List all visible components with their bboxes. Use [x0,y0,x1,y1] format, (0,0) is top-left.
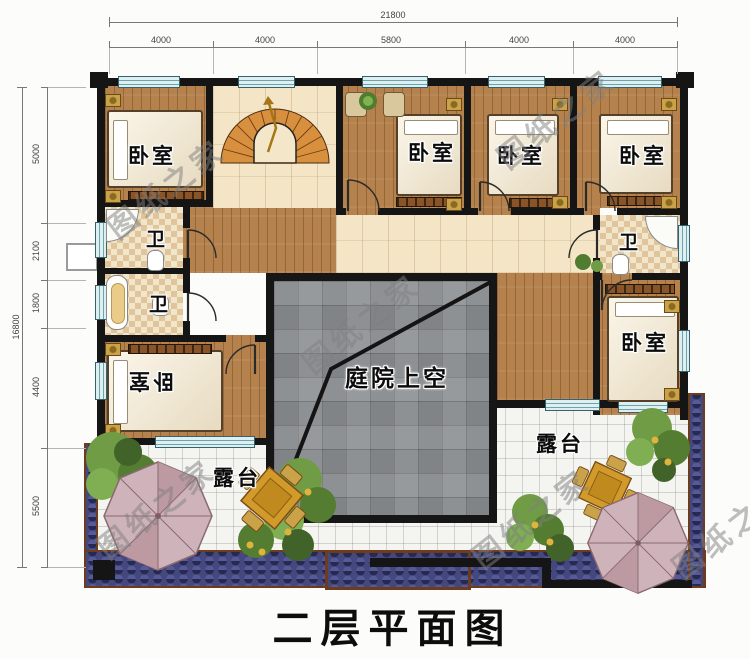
wall [183,321,190,342]
dim-total-top: 21800 [353,10,433,20]
dim-seg-top: 4000 [235,35,295,45]
dim-line [47,87,48,567]
roof-porch-bump [325,550,471,590]
wall [676,72,694,88]
bathtub-basin [111,283,125,324]
dim-extension [48,567,86,568]
exterior-platform [66,243,98,271]
dim-line [22,87,23,567]
wall [97,335,226,342]
room-label-bedroom: 卧室 [126,367,174,397]
dim-total-left: 16800 [11,297,21,357]
dim-line [109,22,677,23]
nightstand [661,196,677,209]
wall [632,273,688,280]
window [488,76,545,88]
wall [90,72,108,88]
chair [345,92,367,117]
dim-seg-left: 1800 [31,281,41,325]
chair [383,92,405,117]
dim-tick [109,17,110,27]
dim-extension [573,48,574,74]
room-label-bathroom: 卫 [619,228,641,255]
room-label-terrace: 露台 [536,428,584,458]
wall [370,558,550,567]
dim-tick [677,17,678,27]
wall [336,78,343,215]
wall [617,208,688,215]
wall [593,215,600,230]
floor-plan-canvas: 卧室 卧室 卧室 卧室 卧室 卧室 卫 卫 卫 庭院上空 露台 露台 图纸之家 … [0,0,750,659]
wall [183,207,190,228]
wardrobe [128,344,212,354]
wall [542,580,692,588]
wall [255,335,270,342]
wall [97,268,190,274]
dim-extension [48,87,86,88]
dim-extension [213,48,214,74]
wall [511,208,584,215]
window [238,76,295,88]
room-label-courtyard: 庭院上空 [345,359,449,393]
nightstand [552,196,568,209]
dim-extension [109,48,110,74]
window [618,401,668,413]
room-label-bathroom: 卫 [146,225,168,252]
dim-seg-left: 5000 [31,132,41,176]
wall [464,78,471,215]
wall [593,273,602,280]
dim-extension [48,448,86,449]
wall [378,208,478,215]
room-label-bathroom: 卫 [149,290,171,317]
dim-tick [17,567,27,568]
dim-extension [48,328,86,329]
nightstand [105,94,121,107]
wall [336,208,346,215]
wall [183,258,190,293]
pillow [607,120,669,135]
pillow [113,120,128,180]
nightstand [664,388,680,401]
page-title: 二层平面图 [97,596,688,654]
dim-extension [317,48,318,74]
window [95,362,107,400]
room-label-bedroom: 卧室 [619,140,667,170]
dim-seg-top: 4000 [489,35,549,45]
nightstand [105,343,121,356]
bathtub [106,275,128,330]
nightstand [446,98,462,111]
window [678,330,690,372]
dim-seg-left: 2100 [31,229,41,273]
dim-seg-top: 4000 [595,35,655,45]
dim-extension [677,48,678,74]
floor-corridor-right [497,273,593,400]
dim-seg-left: 5500 [31,484,41,528]
window [118,76,180,88]
nightstand [664,300,680,313]
nightstand [446,198,462,211]
dim-line [109,47,677,48]
window [155,436,255,448]
wardrobe [605,284,675,294]
toilet [612,254,629,275]
window [678,225,690,262]
dim-extension [48,223,86,224]
window [362,76,428,88]
room-label-bedroom: 卧室 [408,137,456,167]
dim-seg-top: 5800 [361,35,421,45]
wall [593,258,600,273]
nightstand [105,424,121,437]
nightstand [661,98,677,111]
room-label-bedroom: 卧室 [621,327,669,357]
dim-extension [465,48,466,74]
dim-seg-left: 4400 [31,365,41,409]
wall [593,280,600,415]
pillow [404,120,458,135]
dim-seg-top: 4000 [131,35,191,45]
toilet [147,250,164,271]
dim-extension [48,280,86,281]
dim-tick [17,87,27,88]
floor-corridor-mid [336,215,600,273]
window [545,399,600,411]
